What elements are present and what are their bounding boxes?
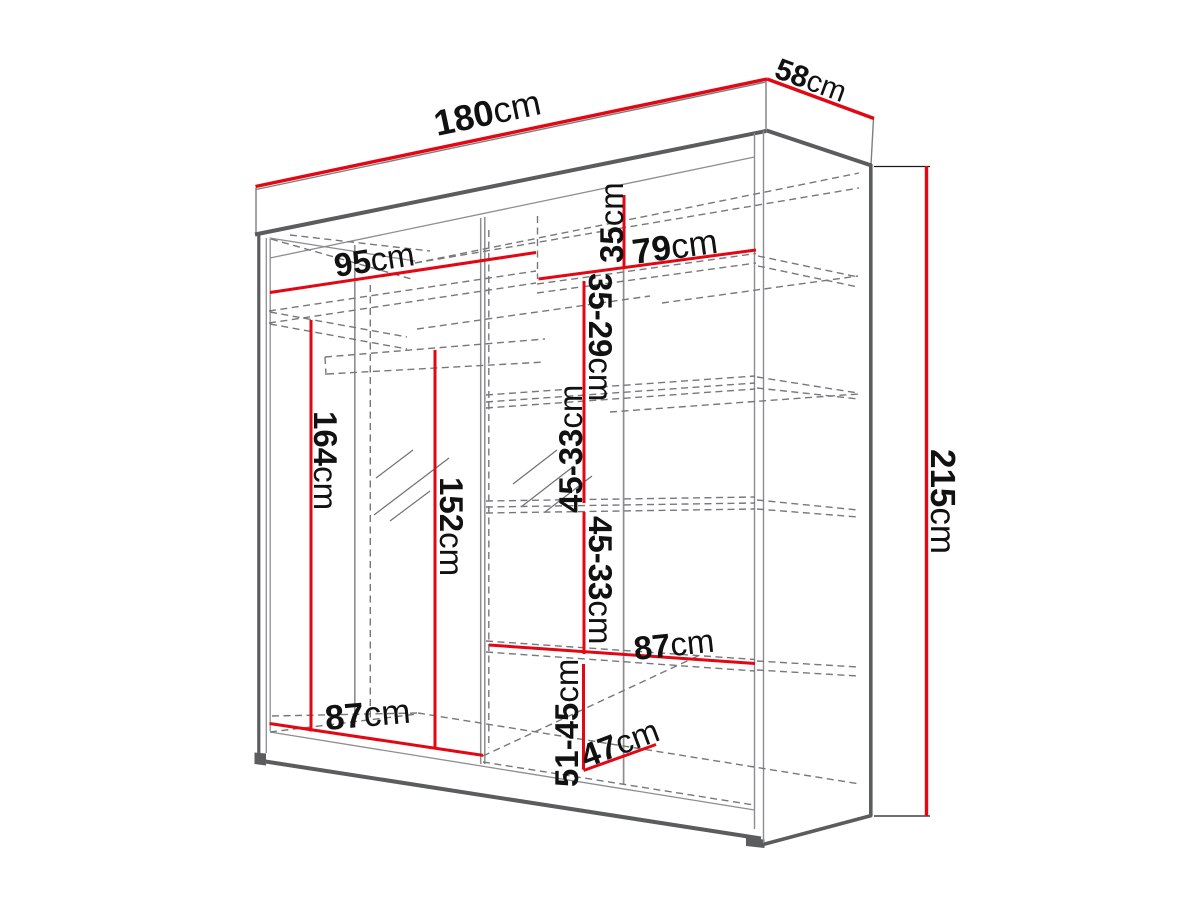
svg-text:215cm: 215cm (923, 449, 962, 554)
svg-text:87cm: 87cm (323, 692, 412, 738)
svg-text:164cm: 164cm (307, 411, 344, 510)
svg-text:152cm: 152cm (433, 477, 470, 576)
svg-text:35-29cm: 35-29cm (582, 273, 619, 401)
svg-text:45-33cm: 45-33cm (582, 516, 619, 644)
svg-text:45-33cm: 45-33cm (552, 385, 589, 513)
svg-text:51-45cm: 51-45cm (548, 659, 585, 787)
svg-text:35cm: 35cm (593, 182, 630, 263)
